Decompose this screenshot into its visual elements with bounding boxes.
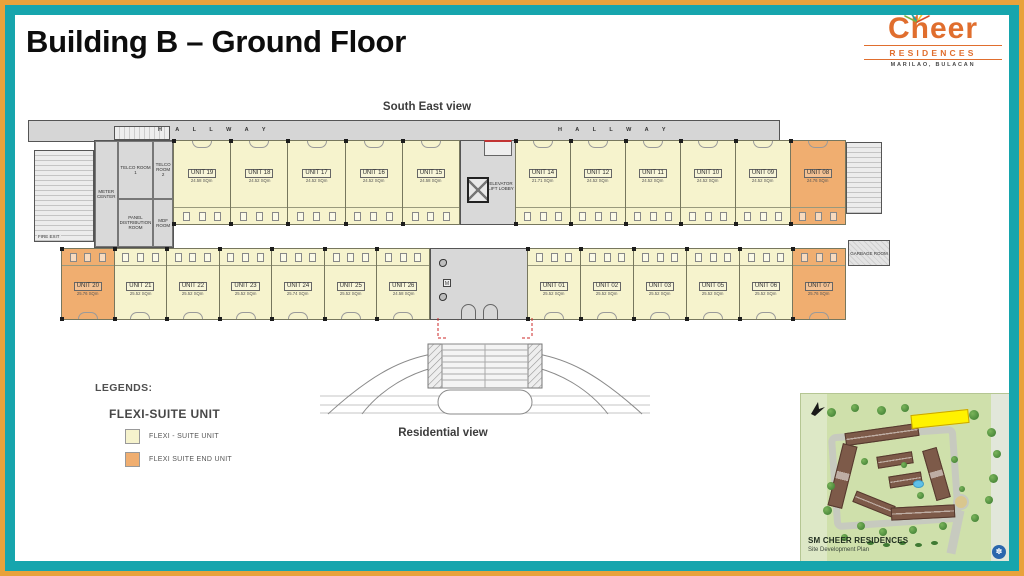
tree-icon	[985, 496, 993, 504]
unit-label: UNIT 05	[699, 282, 727, 291]
tree-icon	[969, 410, 979, 420]
unit-unit-01: UNIT 0125.52 SQm	[527, 248, 581, 320]
elevator-core: ELEVATOR LIFT LOBBY	[460, 140, 516, 225]
tree-icon	[987, 428, 996, 437]
bathroom-fixtures	[516, 207, 570, 224]
hallway-label-right: H A L L W A Y	[558, 127, 672, 133]
balcony-arc	[62, 313, 114, 319]
city-emblem-icon: ✽	[992, 545, 1006, 559]
unit-area: 24.58 SQm	[191, 179, 213, 185]
unit-unit-17: UNIT 1724.52 SQm	[287, 140, 345, 225]
bathroom-fixtures	[740, 249, 792, 266]
unit-label: UNIT 19	[188, 169, 216, 178]
unit-unit-24: UNIT 2425.74 SQm	[271, 248, 325, 320]
unit-label: UNIT 01	[540, 282, 568, 291]
unit-unit-07: UNIT 0725.76 SQm	[792, 248, 846, 320]
unit-area: 24.52 SQm	[642, 179, 664, 185]
residential-view-label: Residential view	[358, 427, 528, 439]
unit-label: UNIT 08	[804, 169, 832, 178]
telco-room-1: TELCO ROOM 1	[118, 141, 154, 199]
bathroom-fixtures	[325, 249, 377, 266]
unit-label: UNIT 03	[646, 282, 674, 291]
tree-icon	[851, 404, 859, 412]
balcony-arc	[740, 313, 792, 319]
tree-icon	[827, 482, 835, 490]
unit-label: UNIT 18	[245, 169, 273, 178]
bush-icon	[915, 543, 922, 547]
unit-area: 24.52 SQm	[363, 179, 385, 185]
bathroom-fixtures	[626, 207, 680, 224]
bathroom-fixtures	[174, 207, 230, 224]
unit-label: UNIT 22	[179, 282, 207, 291]
legend-title: LEGENDS:	[95, 382, 232, 394]
unit-area: 25.52 SQm	[235, 291, 257, 297]
telco-room-2: TELCO ROOM 2	[153, 141, 173, 199]
unit-unit-18: UNIT 1824.52 SQm	[230, 140, 288, 225]
unit-area: 25.52 SQm	[649, 291, 671, 297]
balcony-arc	[167, 313, 219, 319]
unit-area: 25.52 SQm	[543, 291, 565, 297]
bathroom-fixtures	[346, 207, 402, 224]
unit-label: UNIT 10	[694, 169, 722, 178]
unit-area: 21.71 SQm	[532, 179, 554, 185]
unit-unit-14: UNIT 1421.71 SQm	[515, 140, 571, 225]
unit-label: UNIT 21	[126, 282, 154, 291]
plant-icon	[439, 293, 447, 301]
building-b-highlight	[910, 409, 969, 429]
unit-area: 25.52 SQm	[702, 291, 724, 297]
bathroom-fixtures	[634, 249, 686, 266]
bathroom-fixtures	[231, 207, 287, 224]
unit-label: UNIT 17	[302, 169, 330, 178]
unit-unit-21: UNIT 2125.52 SQm	[114, 248, 168, 320]
balcony-arc	[403, 141, 459, 147]
brand-location: MARILAO, BULACAN	[864, 62, 1002, 68]
fire-exit-stair: FIRE EXIT	[34, 150, 94, 242]
tree-icon	[951, 456, 958, 463]
bathroom-fixtures	[687, 249, 739, 266]
tree-icon	[877, 406, 886, 415]
unit-label: UNIT 25	[337, 282, 365, 291]
unit-unit-22: UNIT 2225.52 SQm	[166, 248, 220, 320]
unit-unit-23: UNIT 2325.52 SQm	[219, 248, 273, 320]
tree-icon	[861, 458, 868, 465]
hallway-label-left: H A L L W A Y	[158, 127, 272, 133]
tree-icon	[989, 474, 998, 483]
balcony-arc	[793, 313, 845, 319]
unit-area: 24.52 SQm	[752, 179, 774, 185]
directory-box: M	[443, 279, 451, 287]
bathroom-fixtures	[220, 249, 272, 266]
bathroom-fixtures	[581, 249, 633, 266]
unit-label: UNIT 20	[74, 282, 102, 291]
bathroom-fixtures	[115, 249, 167, 266]
unit-area: 25.52 SQm	[130, 291, 152, 297]
unit-label: UNIT 09	[749, 169, 777, 178]
unit-area: 25.52 SQm	[340, 291, 362, 297]
unit-unit-09: UNIT 0924.52 SQm	[735, 140, 791, 225]
unit-area: 24.52 SQm	[587, 179, 609, 185]
balcony-arc	[231, 141, 287, 147]
unit-area: 25.76 SQm	[808, 291, 830, 297]
balcony-arc	[681, 141, 735, 147]
unit-area: 25.52 SQm	[596, 291, 618, 297]
balcony-arc	[272, 313, 324, 319]
legend-item-flexi-suite: FLEXI - SUITE UNIT	[125, 429, 232, 444]
unit-row-top-left: UNIT 1924.58 SQmUNIT 1824.52 SQmUNIT 172…	[174, 140, 460, 225]
bathroom-fixtures	[528, 249, 580, 266]
unit-label: UNIT 14	[529, 169, 557, 178]
north-arrow-icon	[809, 400, 827, 418]
bathroom-fixtures	[167, 249, 219, 266]
right-stair	[846, 142, 882, 214]
bathroom-fixtures	[791, 207, 845, 224]
legend-item-flexi-end: FLEXI SUITE END UNIT	[125, 452, 232, 467]
tree-icon	[909, 526, 917, 534]
brand-name: Cheer	[864, 14, 1002, 44]
balcony-arc	[220, 313, 272, 319]
bathroom-fixtures	[403, 207, 459, 224]
unit-area: 24.76 SQm	[807, 179, 829, 185]
unit-label: UNIT 06	[752, 282, 780, 291]
tree-icon	[939, 522, 947, 530]
unit-unit-26: UNIT 2624.58 SQm	[376, 248, 430, 320]
tree-icon	[901, 462, 907, 468]
bathroom-fixtures	[681, 207, 735, 224]
balcony-arc	[626, 141, 680, 147]
unit-unit-12: UNIT 1224.52 SQm	[570, 140, 626, 225]
unit-label: UNIT 24	[284, 282, 312, 291]
tree-icon	[971, 514, 979, 522]
unit-area: 24.52 SQm	[306, 179, 328, 185]
tree-icon	[917, 492, 924, 499]
unit-label: UNIT 23	[231, 282, 259, 291]
bathroom-fixtures	[288, 207, 344, 224]
balcony-arc	[687, 313, 739, 319]
unit-unit-10: UNIT 1024.52 SQm	[680, 140, 736, 225]
balcony-arc	[174, 141, 230, 147]
site-plan-title: SM CHEER RESIDENCES	[808, 536, 908, 545]
unit-label: UNIT 15	[417, 169, 445, 178]
floor-plan: FIRE EXIT METER CENTER TELCO ROOM 1 TELC…	[28, 120, 888, 344]
garbage-room: GARBAGE ROOM	[848, 240, 890, 266]
brand-residences: RESIDENCES	[864, 45, 1002, 60]
unit-label: UNIT 26	[389, 282, 417, 291]
balcony-arc	[288, 141, 344, 147]
unit-label: UNIT 12	[584, 169, 612, 178]
bathroom-fixtures	[736, 207, 790, 224]
unit-unit-11: UNIT 1124.52 SQm	[625, 140, 681, 225]
tree-icon	[827, 408, 836, 417]
entrance-driveway	[320, 316, 650, 420]
balcony-arc	[736, 141, 790, 147]
unit-unit-19: UNIT 1924.58 SQm	[173, 140, 231, 225]
unit-unit-08: UNIT 0824.76 SQm	[790, 140, 846, 225]
flexi-end-label: FLEXI SUITE END UNIT	[149, 456, 232, 463]
tree-icon	[879, 528, 887, 536]
slide: Building B – Ground Floor Cheer RESIDENC…	[0, 0, 1024, 576]
south-east-view-label: South East view	[352, 101, 502, 113]
unit-label: UNIT 02	[593, 282, 621, 291]
legend-subtitle: FLEXI-SUITE UNIT	[109, 407, 232, 421]
tree-icon	[857, 522, 865, 530]
unit-unit-15: UNIT 1524.58 SQm	[402, 140, 460, 225]
flexi-end-swatch	[125, 452, 140, 467]
entrance-lobby: M	[430, 248, 528, 320]
unit-unit-20: UNIT 2025.76 SQm	[61, 248, 115, 320]
bathroom-fixtures	[272, 249, 324, 266]
unit-area: 24.52 SQm	[697, 179, 719, 185]
flexi-suite-label: FLEXI - SUITE UNIT	[149, 433, 219, 440]
elevator-shaft	[467, 177, 489, 203]
legend: LEGENDS: FLEXI-SUITE UNIT FLEXI - SUITE …	[95, 382, 232, 467]
pool	[913, 480, 924, 488]
fire-exit-label: FIRE EXIT	[37, 234, 61, 239]
unit-area: 24.52 SQm	[249, 179, 271, 185]
core-utility-room	[484, 140, 512, 156]
unit-unit-25: UNIT 2525.52 SQm	[324, 248, 378, 320]
unit-label: UNIT 16	[360, 169, 388, 178]
elevator-lobby-label: ELEVATOR LIFT LOBBY	[488, 181, 514, 191]
balcony-arc	[516, 141, 570, 147]
site-roundabout	[953, 494, 969, 510]
bush-icon	[931, 541, 938, 545]
firework-icon	[902, 4, 932, 24]
site-development-plan-inset: SM CHEER RESIDENCES Site Development Pla…	[800, 393, 1012, 565]
cheer-logo: Cheer RESIDENCES MARILAO, BULACAN	[864, 14, 1002, 68]
unit-unit-06: UNIT 0625.52 SQm	[739, 248, 793, 320]
unit-row-bottom-left: UNIT 2025.76 SQmUNIT 2125.52 SQmUNIT 222…	[62, 248, 430, 320]
tree-icon	[901, 404, 909, 412]
balcony-arc	[115, 313, 167, 319]
unit-label: UNIT 07	[805, 282, 833, 291]
bathroom-fixtures	[377, 249, 429, 266]
flexi-suite-swatch	[125, 429, 140, 444]
unit-unit-16: UNIT 1624.52 SQm	[345, 140, 403, 225]
panel-distribution-room: PANEL DISTRIBUTION ROOM	[118, 199, 154, 247]
unit-unit-03: UNIT 0325.52 SQm	[633, 248, 687, 320]
balcony-arc	[571, 141, 625, 147]
unit-area: 24.58 SQm	[420, 179, 442, 185]
unit-row-bottom-right: UNIT 0125.52 SQmUNIT 0225.52 SQmUNIT 032…	[528, 248, 846, 320]
unit-unit-05: UNIT 0525.52 SQm	[686, 248, 740, 320]
unit-row-top-right: UNIT 1421.71 SQmUNIT 1224.52 SQmUNIT 112…	[516, 140, 846, 225]
unit-area: 24.58 SQm	[393, 291, 415, 297]
unit-area: 25.74 SQm	[287, 291, 309, 297]
utility-rooms: METER CENTER TELCO ROOM 1 TELCO ROOM 2 P…	[94, 140, 174, 248]
bathroom-fixtures	[571, 207, 625, 224]
tree-icon	[993, 450, 1001, 458]
unit-area: 25.52 SQm	[182, 291, 204, 297]
plant-icon	[439, 259, 447, 267]
unit-unit-02: UNIT 0225.52 SQm	[580, 248, 634, 320]
unit-area: 25.52 SQm	[755, 291, 777, 297]
site-plan-subtitle: Site Development Plan	[808, 547, 869, 553]
unit-label: UNIT 11	[639, 169, 667, 178]
page-title: Building B – Ground Floor	[26, 24, 406, 60]
mdf-room: MDF ROOM	[153, 199, 173, 247]
unit-area: 25.76 SQm	[77, 291, 99, 297]
tree-icon	[959, 486, 965, 492]
balcony-arc	[346, 141, 402, 147]
bathroom-fixtures	[62, 249, 114, 266]
balcony-arc	[791, 141, 845, 147]
bathroom-fixtures	[793, 249, 845, 266]
tree-icon	[823, 506, 832, 515]
meter-center-room: METER CENTER	[95, 141, 118, 247]
